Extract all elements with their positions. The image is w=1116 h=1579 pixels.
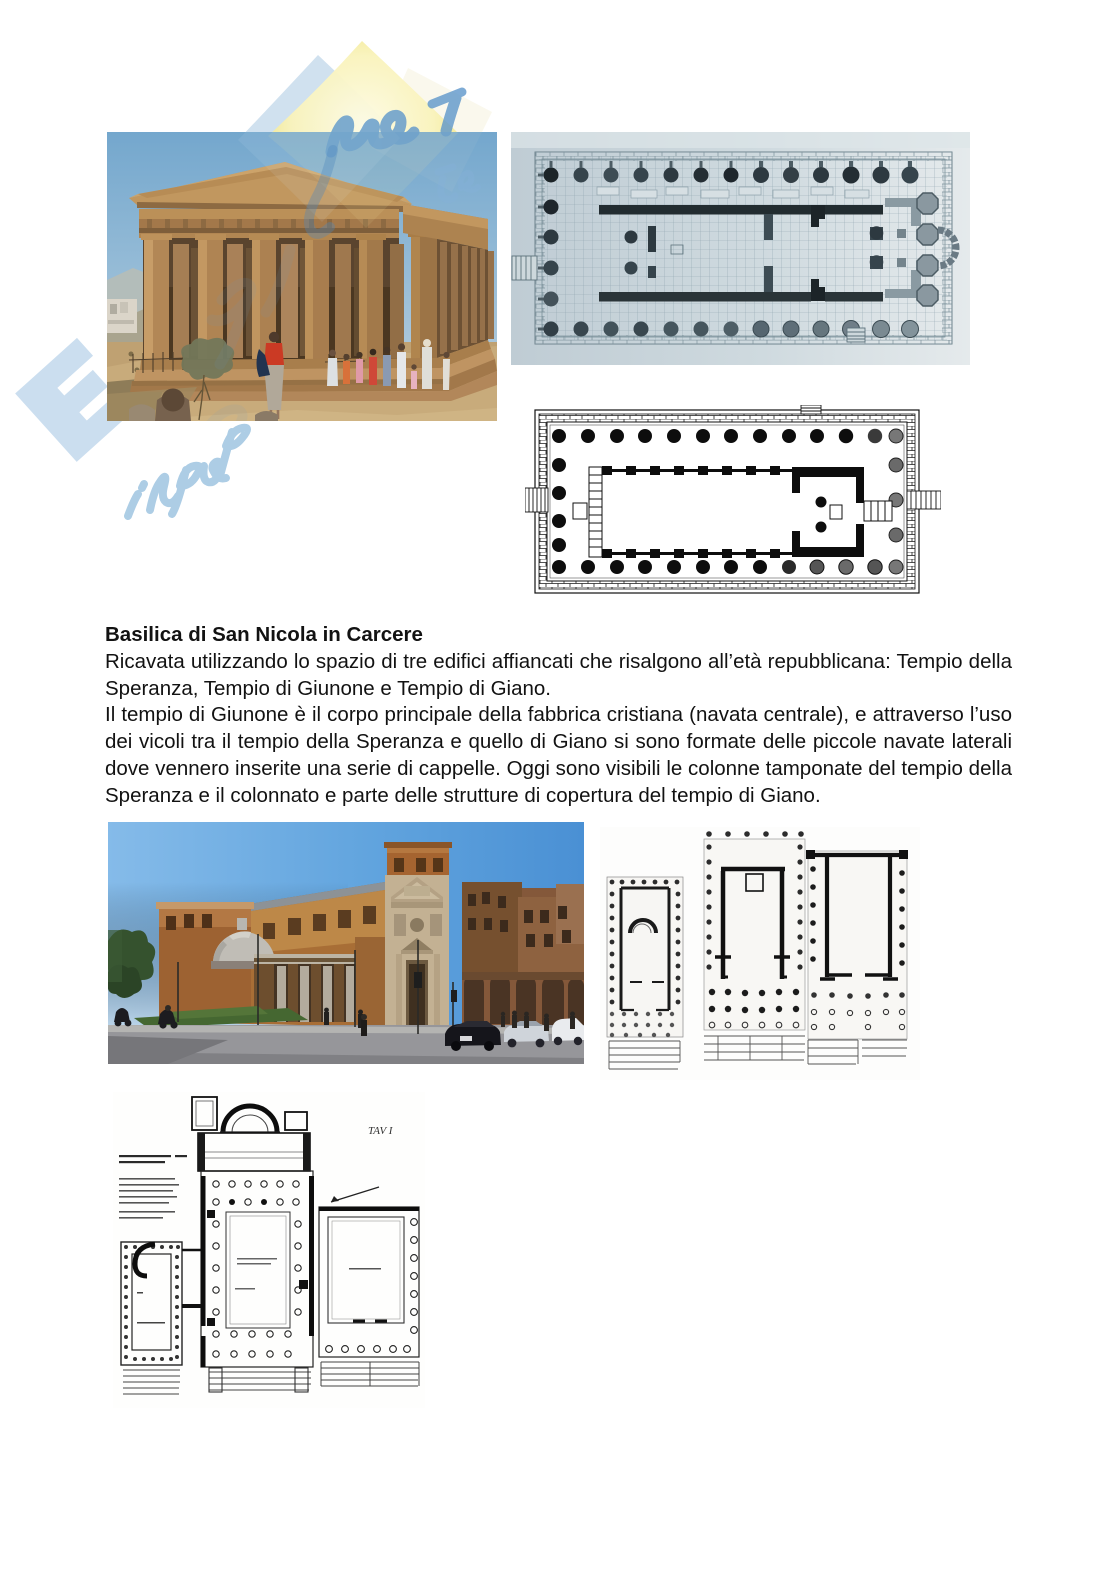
svg-text:TAV I: TAV I xyxy=(368,1125,394,1137)
